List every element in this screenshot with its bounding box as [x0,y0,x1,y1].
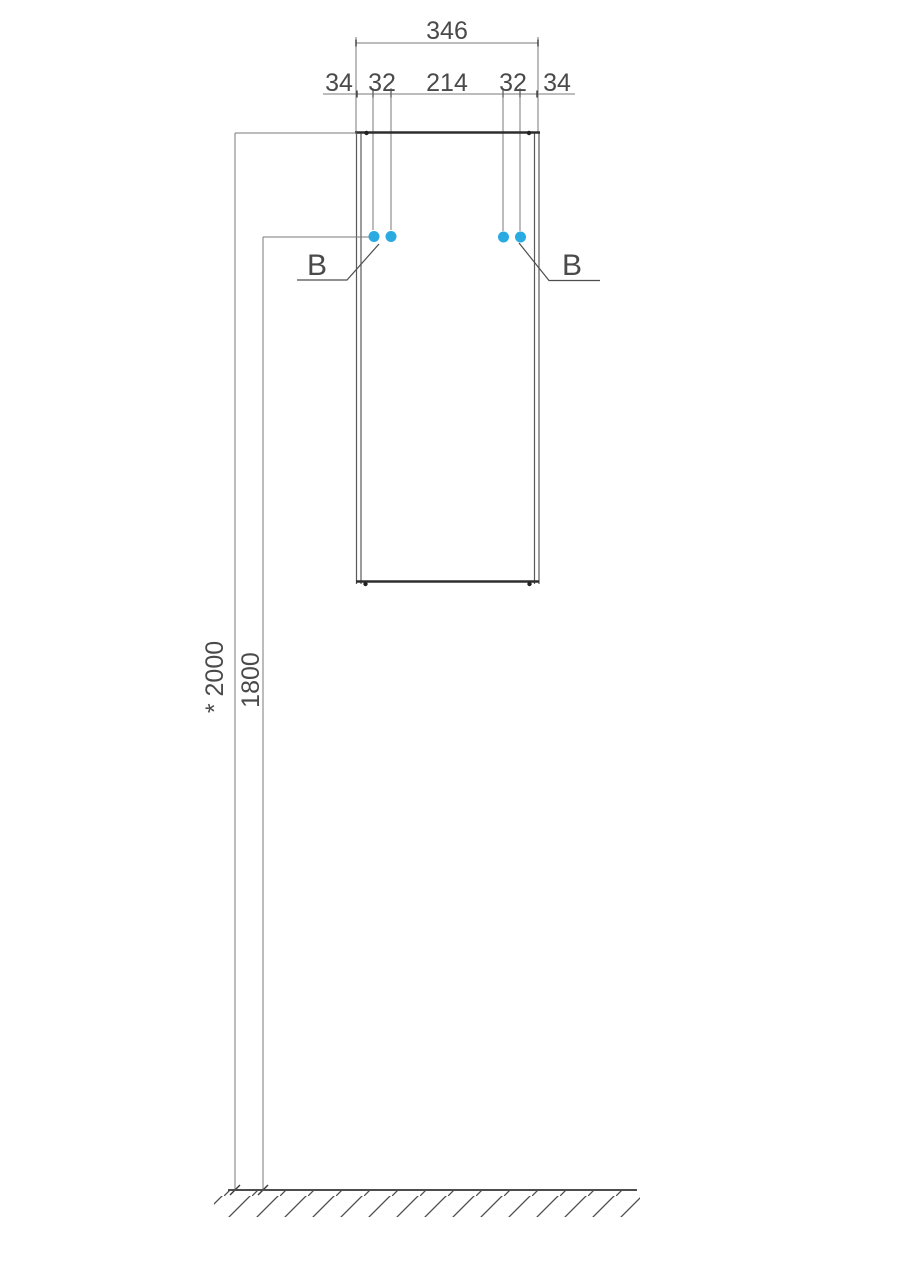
height-dimension-1800: 1800 [237,237,369,1195]
leader-line-right [519,243,600,281]
mount-point-dot [386,231,397,242]
mount-label-b-left: B [307,249,327,282]
mount-callouts: B B [297,243,600,282]
dim-label-214-center: 214 [426,69,468,97]
dim-label-total-width: 346 [426,17,468,45]
cabinet-outline [355,131,540,586]
height-dim-label-1800: 1800 [237,652,265,708]
dim-label-34-right: 34 [543,69,571,97]
mount-point-dot [369,231,380,242]
corner-mark-top-right [527,131,531,135]
drawing-page: 346 34 32 214 32 34 [0,0,900,1274]
floor-hatching [214,1191,640,1217]
corner-mark-bottom-right [527,582,531,586]
mount-label-b-right: B [562,249,582,282]
dim-label-32-left: 32 [368,69,396,97]
height-dim-label-2000: * 2000 [201,641,229,713]
mount-point-dot [515,232,526,243]
height-dimension-2000: * 2000 [201,133,357,1195]
corner-mark-top-left [364,131,368,135]
mount-point-dot [498,232,509,243]
mount-points [369,231,527,243]
floor [214,1190,640,1217]
dim-label-34-left: 34 [325,69,353,97]
dim-label-32-right: 32 [499,69,527,97]
cabinet-mounting-drawing: 346 34 32 214 32 34 [0,0,900,1274]
corner-mark-bottom-left [363,582,367,586]
